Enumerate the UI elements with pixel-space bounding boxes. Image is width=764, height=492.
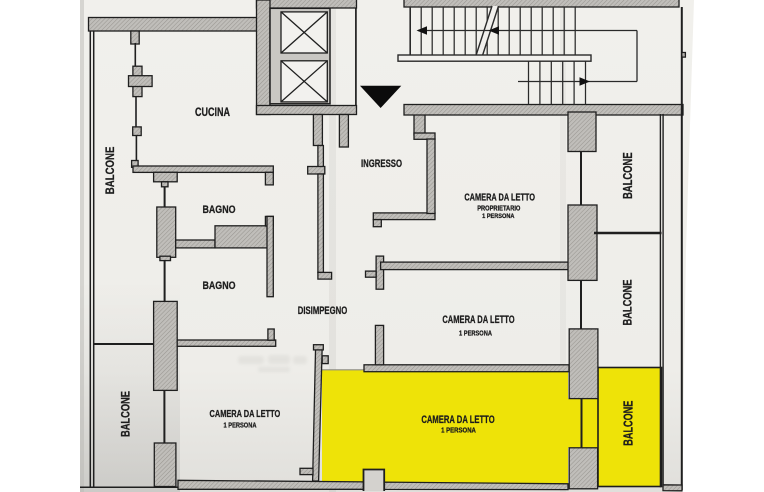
svg-text:CAMERA DA LETTO: CAMERA DA LETTO xyxy=(421,414,495,426)
svg-text:1 PERSONA: 1 PERSONA xyxy=(224,421,258,430)
svg-text:CAMERA DA LETTO: CAMERA DA LETTO xyxy=(442,314,515,326)
svg-text:1 PERSONA: 1 PERSONA xyxy=(441,426,476,435)
svg-text:BALCONE: BALCONE xyxy=(103,147,117,195)
svg-text:BALCONE: BALCONE xyxy=(621,280,635,326)
svg-text:BAGNO: BAGNO xyxy=(203,204,236,216)
svg-text:BAGNO: BAGNO xyxy=(203,280,236,292)
svg-text:DISIMPEGNO: DISIMPEGNO xyxy=(298,305,348,317)
svg-text:INGRESSO: INGRESSO xyxy=(361,158,402,170)
svg-text:BALCONE: BALCONE xyxy=(621,152,635,199)
svg-text:CAMERA DA LETTO: CAMERA DA LETTO xyxy=(210,409,281,420)
svg-text:BALCONE: BALCONE xyxy=(622,401,636,446)
svg-text:BALCONE: BALCONE xyxy=(118,391,132,437)
svg-text:CAMERA DA LETTO: CAMERA DA LETTO xyxy=(464,193,535,204)
svg-text:PROPRIETARIO: PROPRIETARIO xyxy=(477,206,521,213)
svg-text:1 PERSONA: 1 PERSONA xyxy=(482,213,515,220)
svg-text:CUCINA: CUCINA xyxy=(195,107,230,119)
svg-text:1 PERSONA: 1 PERSONA xyxy=(459,328,492,337)
